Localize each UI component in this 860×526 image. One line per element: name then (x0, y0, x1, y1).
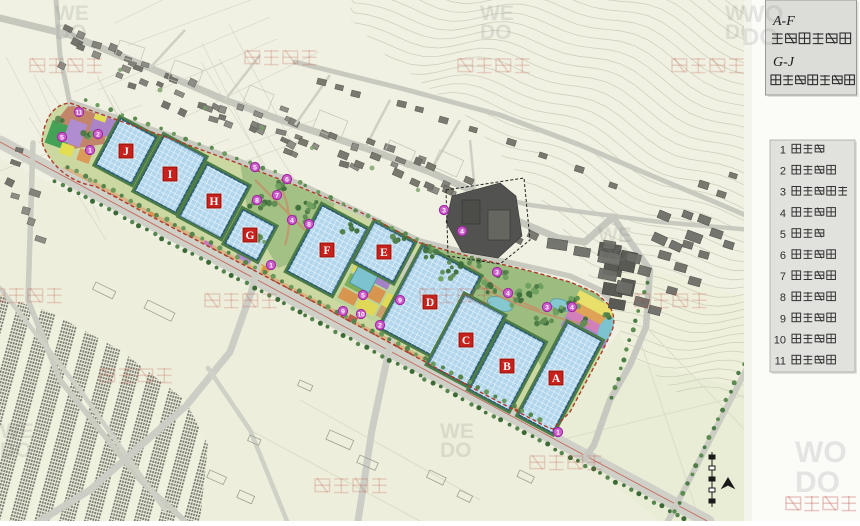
svg-text:5: 5 (780, 229, 786, 241)
svg-text:1: 1 (556, 430, 560, 437)
svg-text:4: 4 (780, 208, 786, 220)
svg-text:WO: WO (795, 436, 847, 469)
svg-text:DO: DO (480, 21, 512, 44)
svg-text:B: B (503, 361, 511, 373)
svg-text:DO: DO (55, 21, 87, 44)
svg-text:C: C (462, 335, 470, 347)
svg-text:3: 3 (780, 187, 786, 199)
svg-text:11: 11 (75, 110, 82, 117)
svg-text:4: 4 (570, 305, 574, 312)
svg-text:9: 9 (398, 298, 402, 305)
svg-text:G: G (246, 230, 255, 242)
svg-text:3: 3 (545, 305, 549, 312)
svg-text:4: 4 (460, 229, 464, 236)
svg-text:J: J (123, 146, 129, 158)
svg-text:1: 1 (88, 148, 92, 155)
svg-text:3: 3 (442, 208, 446, 215)
svg-text:4: 4 (290, 218, 294, 225)
svg-text:5: 5 (253, 165, 257, 172)
svg-text:DO: DO (742, 24, 778, 51)
svg-text:DO: DO (0, 439, 32, 462)
svg-text:A: A (552, 373, 561, 385)
svg-text:5: 5 (60, 135, 64, 142)
svg-text:5: 5 (361, 293, 365, 300)
svg-text:8: 8 (307, 222, 311, 229)
svg-text:10: 10 (357, 312, 365, 319)
svg-text:10: 10 (774, 334, 786, 346)
svg-text:I: I (168, 169, 173, 181)
svg-text:1: 1 (780, 145, 786, 157)
svg-text:4: 4 (506, 291, 510, 298)
svg-text:F: F (323, 245, 330, 257)
svg-text:2: 2 (96, 132, 100, 139)
svg-text:2: 2 (780, 166, 786, 178)
svg-text:9: 9 (780, 313, 786, 325)
svg-text:DO: DO (795, 466, 840, 499)
svg-text:7: 7 (275, 193, 279, 200)
svg-text:6: 6 (285, 177, 289, 184)
svg-text:DO: DO (440, 439, 472, 462)
svg-text:G-J: G-J (773, 55, 795, 70)
svg-text:8: 8 (255, 198, 259, 205)
svg-text:H: H (210, 196, 219, 208)
svg-text:11: 11 (775, 356, 786, 368)
svg-text:DO: DO (598, 243, 630, 266)
svg-text:2: 2 (378, 323, 382, 330)
svg-text:6: 6 (780, 250, 786, 262)
svg-text:3: 3 (495, 270, 499, 277)
svg-text:7: 7 (780, 271, 786, 283)
svg-text:E: E (380, 247, 388, 259)
svg-text:8: 8 (780, 292, 786, 304)
svg-text:1: 1 (269, 263, 273, 270)
svg-text:9: 9 (341, 309, 345, 316)
